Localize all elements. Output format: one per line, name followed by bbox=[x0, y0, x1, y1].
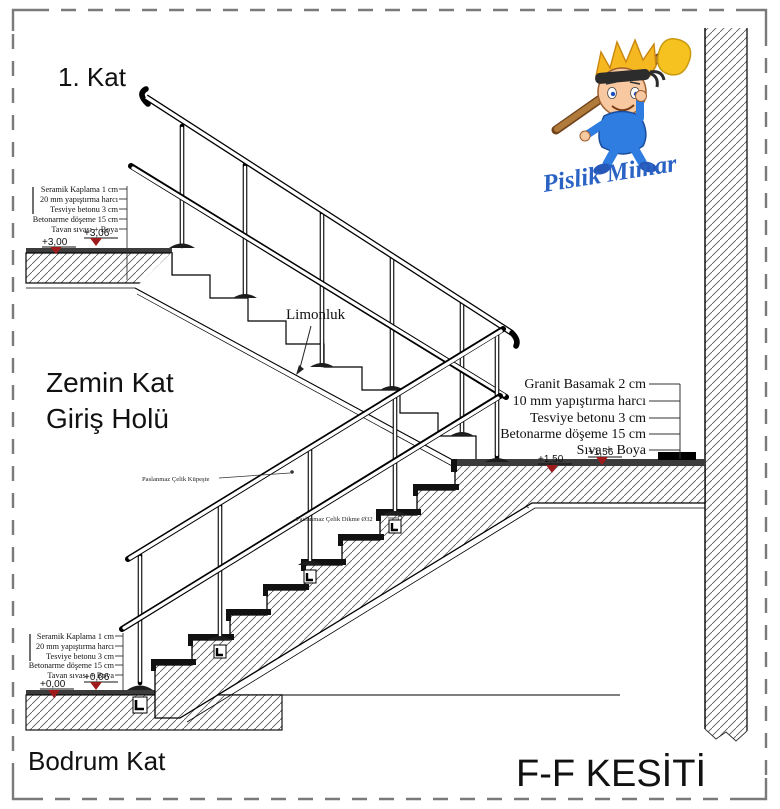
callout-line: Granit Basamak 2 cm bbox=[524, 377, 646, 392]
elevation-label: +3,00 bbox=[42, 237, 68, 248]
callout-line: 20 mm yapıştırma harcı bbox=[36, 642, 115, 651]
hand-left bbox=[580, 131, 590, 141]
section-marker-bar bbox=[658, 452, 696, 460]
stair-concrete-section bbox=[155, 465, 705, 718]
callout-line: Tavan sıvası + Boya bbox=[47, 671, 114, 680]
callout-line: Sıva + Boya bbox=[577, 443, 647, 458]
elevation-label: +1,50 bbox=[538, 454, 564, 465]
stair-section-drawing: +3,00 +3,06 +1,50 +1,56 +0,00 +0,06 bbox=[0, 0, 780, 809]
callout-line: 20 mm yapıştırma harcı bbox=[40, 195, 119, 204]
callout-line: 10 mm yapıştırma harcı bbox=[513, 394, 646, 409]
callout-line: Betonarme döşeme 15 cm bbox=[33, 215, 119, 224]
callout-line: Tesviye betonu 3 cm bbox=[46, 652, 114, 661]
border-corner-tr bbox=[745, 10, 766, 31]
elevation-arrow bbox=[90, 238, 102, 246]
callout-line: Tesviye betonu 3 cm bbox=[50, 205, 118, 214]
limonluk-label: Limonluk bbox=[286, 307, 346, 323]
basement-slab bbox=[26, 690, 620, 730]
callout-line: Tavan sıvası + Boya bbox=[51, 225, 118, 234]
handrail-label: Paslanmaz Çelik Küpeşte bbox=[142, 476, 209, 483]
elevation-label: +0,00 bbox=[40, 679, 66, 690]
callout-leaders bbox=[649, 384, 680, 459]
leader-dot bbox=[290, 470, 294, 474]
basement-concrete bbox=[26, 695, 282, 730]
callout-line: Betonarme döşeme 15 cm bbox=[29, 661, 115, 670]
border-corner-bl bbox=[13, 778, 34, 799]
callout-line: Seramik Kaplama 1 cm bbox=[37, 632, 115, 641]
basement-label: Bodrum Kat bbox=[28, 746, 166, 776]
elevation-arrow bbox=[90, 682, 102, 690]
stair-callouts: Granit Basamak 2 cm 10 mm yapıştırma har… bbox=[500, 377, 680, 459]
ground-floor-label-line1: Zemin Kat bbox=[46, 367, 174, 398]
right-wall-section bbox=[705, 28, 747, 741]
axe-head bbox=[658, 39, 691, 75]
hand-right bbox=[636, 91, 647, 102]
logo: Pislik Mimar bbox=[540, 39, 691, 198]
border-corner-tl bbox=[13, 10, 34, 31]
callout-line: Betonarme döşeme 15 cm bbox=[500, 427, 646, 442]
ground-floor-label-line2: Giriş Holü bbox=[46, 403, 169, 434]
callout-line: Seramik Kaplama 1 cm bbox=[41, 185, 119, 194]
landing-nosing bbox=[451, 459, 457, 472]
callout-leaders bbox=[115, 633, 123, 692]
drawing-sheet: +3,00 +3,06 +1,50 +1,56 +0,00 +0,06 bbox=[0, 0, 780, 809]
border-corner-br bbox=[745, 778, 766, 799]
headband-knot bbox=[649, 72, 664, 87]
first-floor-label: 1. Kat bbox=[58, 62, 127, 92]
handrail-end-curl bbox=[512, 333, 517, 346]
baluster-label: Paslanmaz Çelik Dikme Ø32 bbox=[296, 516, 373, 523]
callout-line: Tesviye betonu 3 cm bbox=[530, 411, 646, 426]
floor-finish-layer bbox=[26, 248, 172, 253]
eye bbox=[611, 92, 615, 96]
section-title: F-F KESİTİ bbox=[516, 752, 706, 795]
